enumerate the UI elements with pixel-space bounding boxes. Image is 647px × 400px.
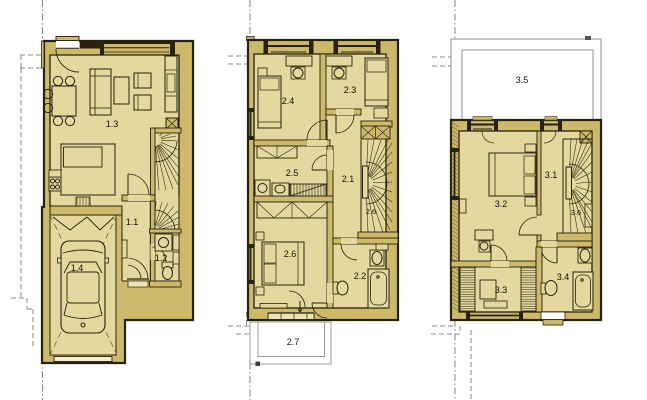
- svg-text:2.2: 2.2: [354, 271, 367, 281]
- svg-text:1.3: 1.3: [106, 119, 119, 129]
- svg-text:3.1: 3.1: [545, 170, 558, 180]
- svg-text:1.1: 1.1: [126, 217, 139, 227]
- svg-text:3.6: 3.6: [571, 208, 581, 217]
- svg-text:2.3: 2.3: [344, 85, 357, 95]
- svg-text:3.3: 3.3: [495, 285, 508, 295]
- svg-text:3.4: 3.4: [557, 272, 570, 282]
- svg-text:2.1: 2.1: [342, 174, 355, 184]
- svg-text:3.5: 3.5: [516, 75, 529, 85]
- svg-text:3.2: 3.2: [495, 199, 508, 209]
- svg-text:1.4: 1.4: [71, 263, 84, 273]
- svg-text:2.6: 2.6: [284, 249, 297, 259]
- svg-text:1.2: 1.2: [155, 253, 168, 263]
- svg-text:2.5: 2.5: [286, 168, 299, 178]
- svg-text:2.6: 2.6: [366, 207, 376, 216]
- svg-text:2.4: 2.4: [282, 96, 295, 106]
- svg-text:2.7: 2.7: [287, 337, 300, 347]
